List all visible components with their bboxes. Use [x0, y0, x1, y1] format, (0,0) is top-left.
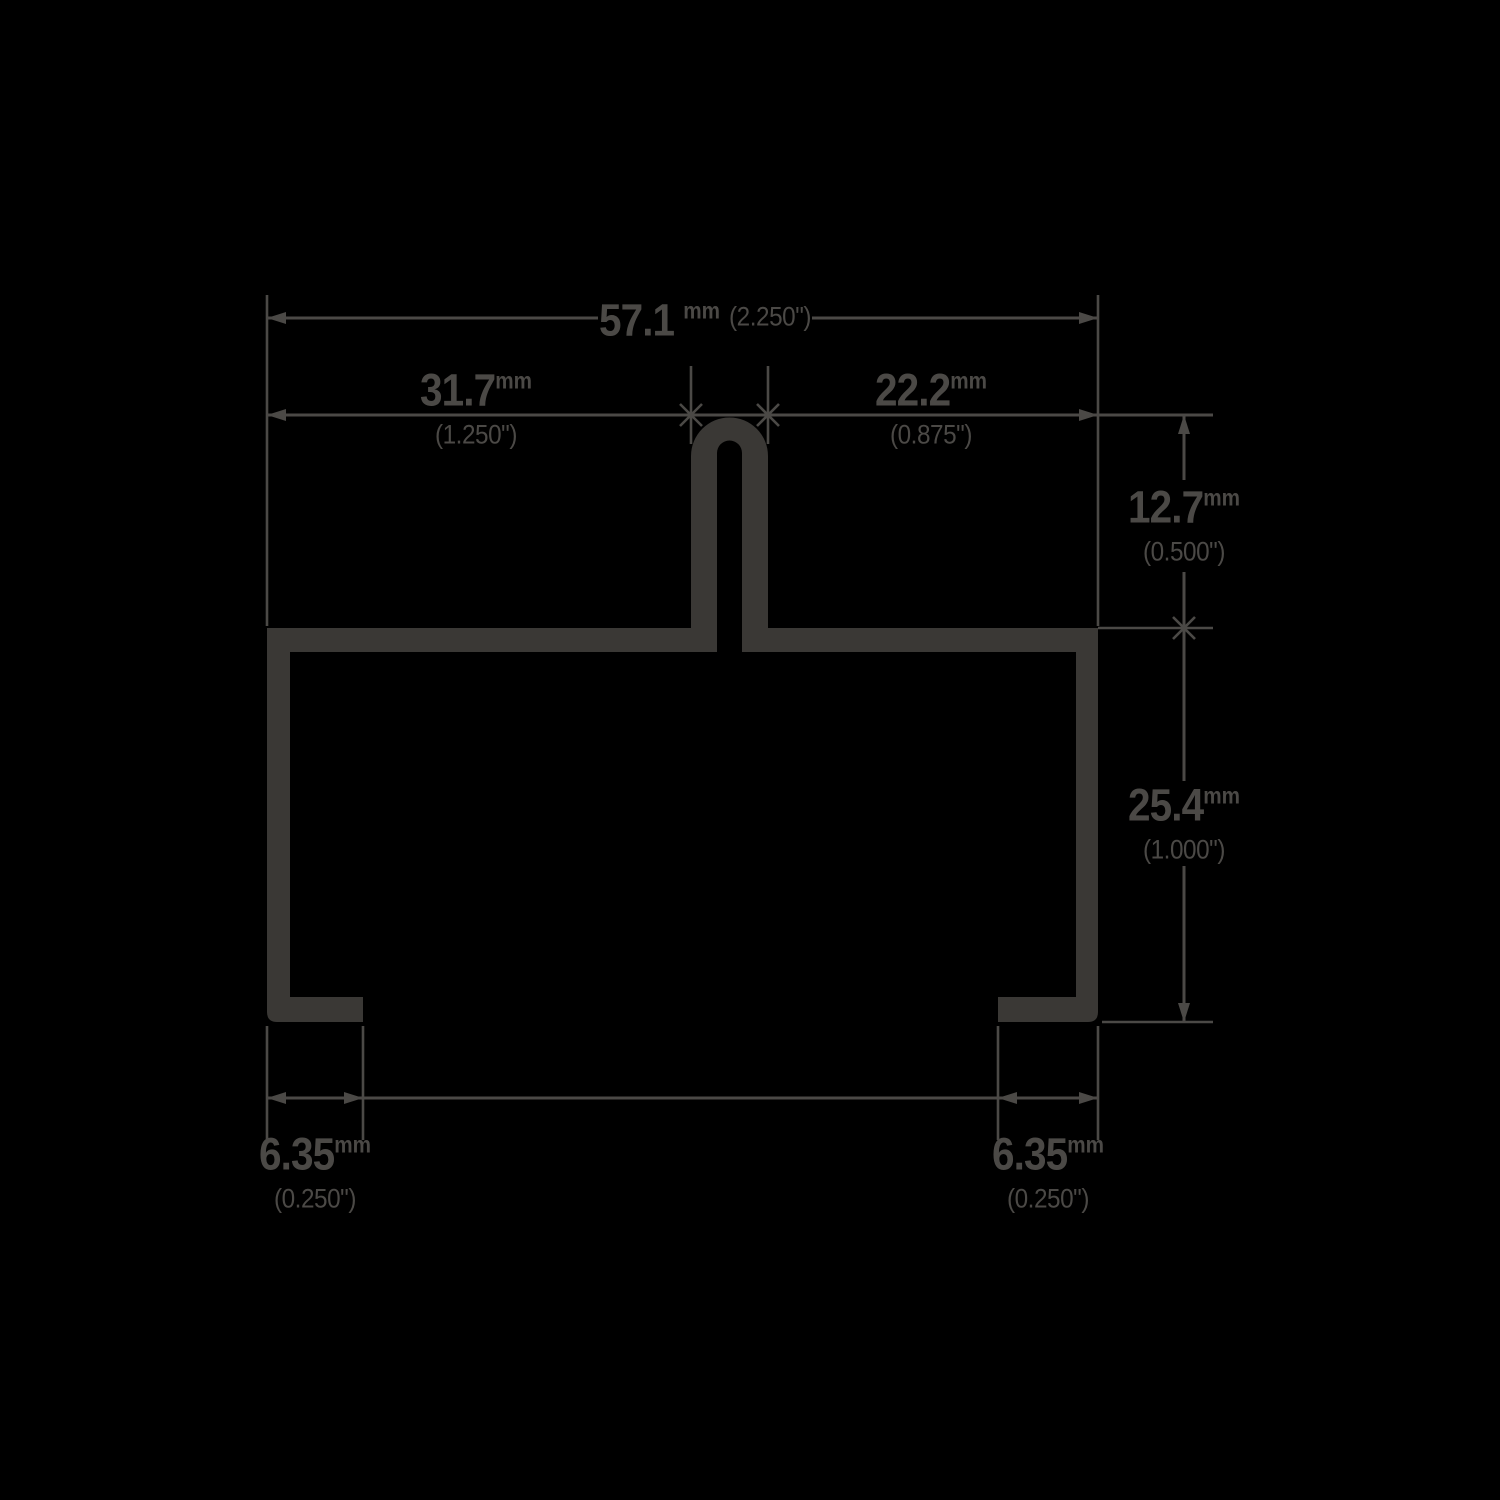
- dim-value-inch: (2.250"): [729, 302, 811, 333]
- arrow-left-icon: [267, 409, 286, 421]
- arrow-left-icon: [267, 1092, 286, 1104]
- dim-unit: mm: [334, 1131, 371, 1156]
- dim-value-mm: 6.35: [992, 1131, 1067, 1176]
- dim-value-mm: 22.2: [875, 367, 950, 412]
- dim-value-mm: 25.4: [1128, 782, 1203, 827]
- dim-unit: mm: [1203, 484, 1240, 509]
- arrow-up-icon: [1178, 415, 1190, 434]
- arrow-down-icon: [1178, 1003, 1190, 1022]
- dim-value-inch: (0.250"): [1007, 1183, 1089, 1214]
- dim-label-overall-width: 57.1mm (2.250"): [599, 298, 811, 343]
- dim-label-right-foot: 6.35mm (0.250"): [992, 1131, 1104, 1214]
- dim-unit: mm: [1067, 1131, 1104, 1156]
- arrow-right-icon: [1079, 1092, 1098, 1104]
- dim-label-left-foot: 6.35mm (0.250"): [259, 1131, 371, 1214]
- arrow-right-icon: [1079, 312, 1098, 324]
- dim-label-left-segment: 31.7mm (1.250"): [420, 367, 532, 450]
- arrow-left-icon: [267, 312, 286, 324]
- dim-unit: mm: [1203, 782, 1240, 807]
- dim-label-right-segment: 22.2mm (0.875"): [875, 367, 987, 450]
- dim-value-inch: (0.500"): [1143, 536, 1225, 567]
- dim-label-body-height: 25.4mm (1.000"): [1128, 782, 1240, 865]
- dim-value-mm: 57.1: [599, 298, 674, 343]
- dim-value-inch: (0.875"): [890, 419, 972, 450]
- arrow-left-icon: [998, 1092, 1017, 1104]
- dim-value-inch: (1.250"): [435, 419, 517, 450]
- dim-value-inch: (1.000"): [1143, 834, 1225, 865]
- dim-value-mm: 6.35: [259, 1131, 334, 1176]
- profile-drawing: [0, 0, 1500, 1500]
- dim-unit: mm: [950, 367, 987, 392]
- dim-value-mm: 31.7: [420, 367, 495, 412]
- dim-unit: mm: [683, 298, 720, 323]
- dimension-drawing-canvas: 57.1mm (2.250") 31.7mm (1.250") 22.2mm (…: [0, 0, 1500, 1500]
- profile-cross-section: [267, 418, 1098, 1023]
- dim-value-inch: (0.250"): [274, 1183, 356, 1214]
- arrow-right-icon: [344, 1092, 363, 1104]
- dim-label-seam-height: 12.7mm (0.500"): [1128, 484, 1240, 567]
- arrow-right-icon: [1079, 409, 1098, 421]
- dim-unit: mm: [495, 367, 532, 392]
- dim-value-mm: 12.7: [1128, 484, 1203, 529]
